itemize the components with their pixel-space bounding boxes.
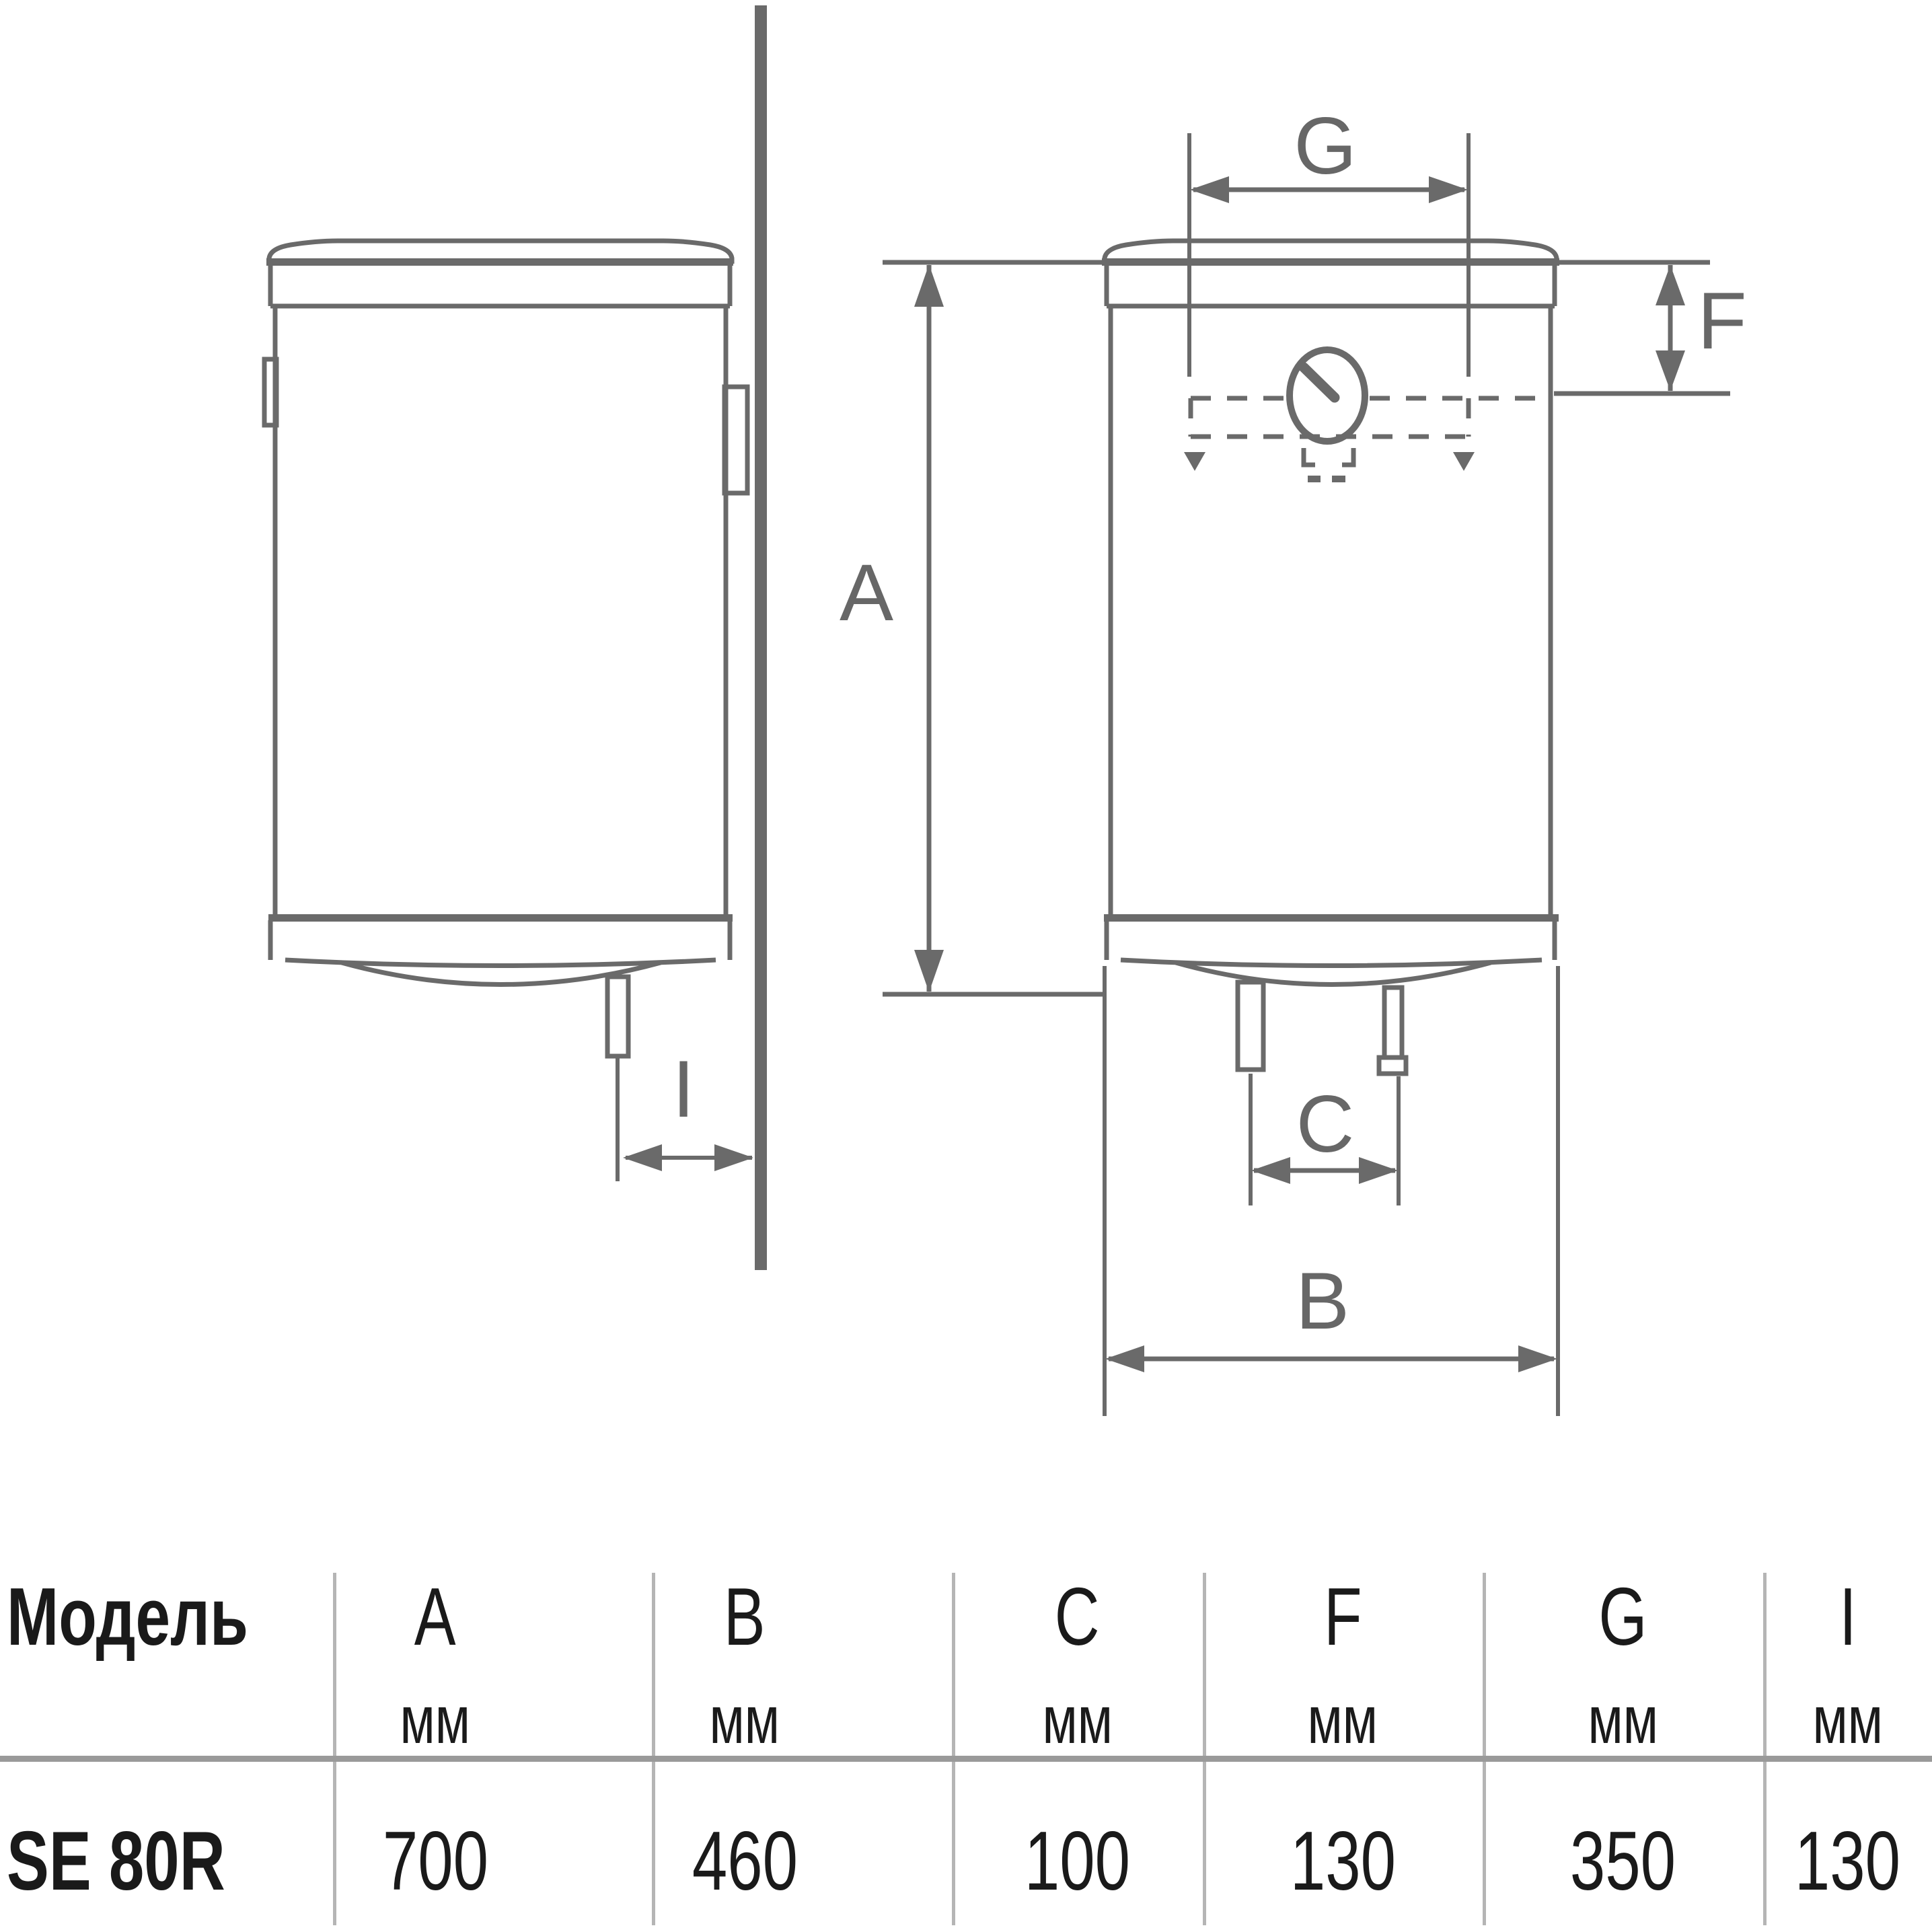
dim-B-arrow-right bbox=[1518, 1345, 1557, 1372]
value-g: 350 bbox=[1483, 1811, 1763, 1912]
dim-I: I bbox=[623, 1044, 753, 1171]
bracket-left bbox=[264, 359, 276, 425]
units-g: мм bbox=[1483, 1682, 1763, 1759]
value-a-text: 700 bbox=[382, 1814, 488, 1909]
units-f: мм bbox=[1203, 1682, 1483, 1759]
value-b: 460 bbox=[652, 1811, 952, 1912]
dim-A: A bbox=[840, 262, 1103, 994]
dim-G-arrow-right bbox=[1429, 176, 1468, 203]
spec-table: Модель A B C F G I мм мм мм мм мм мм SE … bbox=[0, 1547, 1932, 1932]
value-f-text: 130 bbox=[1290, 1814, 1395, 1909]
dimension-diagram: I A bbox=[0, 0, 1932, 1514]
dim-C-arrow-right bbox=[1359, 1157, 1398, 1184]
units-a-label: мм bbox=[400, 1682, 471, 1759]
table-data-row: SE 80R 700 460 100 130 350 130 bbox=[0, 1811, 1932, 1912]
dim-I-label: I bbox=[672, 1044, 694, 1134]
pipe-outlet-foot bbox=[1379, 1057, 1406, 1074]
header-dim-g: G bbox=[1483, 1566, 1763, 1667]
value-model-cell: SE 80R bbox=[0, 1811, 333, 1912]
units-g-label: мм bbox=[1588, 1682, 1658, 1759]
dim-I-arrow-left bbox=[623, 1144, 662, 1171]
value-i-text: 130 bbox=[1795, 1814, 1900, 1909]
pipe-inlet bbox=[1238, 982, 1263, 1070]
page: { "diagram": { "labels": { "a": "A", "b"… bbox=[0, 0, 1932, 1932]
dim-F-arrow-down bbox=[1656, 350, 1685, 391]
wall-line bbox=[755, 5, 767, 1270]
dim-C-label: C bbox=[1296, 1079, 1355, 1169]
units-f-label: мм bbox=[1308, 1682, 1378, 1759]
value-f: 130 bbox=[1203, 1811, 1483, 1912]
pipe-outlet bbox=[1384, 988, 1402, 1057]
water-heater-drawing: I A bbox=[0, 0, 1932, 1514]
dim-A-arrow-up bbox=[914, 264, 944, 307]
header-dim-f: F bbox=[1203, 1566, 1483, 1667]
header-model-cell: Модель bbox=[0, 1566, 333, 1667]
tank-top-thick-line bbox=[266, 258, 733, 266]
dim-F-arrow-up bbox=[1656, 265, 1685, 305]
table-header-row: Модель A B C F G I bbox=[0, 1566, 1932, 1667]
bracket-arrow-down-left bbox=[1184, 452, 1205, 471]
tank-bottom-thick-line bbox=[268, 914, 733, 922]
tank-bottom-thick-line-front bbox=[1104, 914, 1559, 922]
units-b-label: мм bbox=[710, 1682, 780, 1759]
dim-I-arrow-right bbox=[714, 1144, 753, 1171]
value-i: 130 bbox=[1763, 1811, 1932, 1912]
units-b: мм bbox=[652, 1682, 952, 1759]
dim-C-arrow-left bbox=[1251, 1157, 1290, 1184]
header-dim-f-label: F bbox=[1324, 1569, 1362, 1664]
value-model-label: SE 80R bbox=[7, 1814, 225, 1909]
header-dim-i-label: I bbox=[1839, 1569, 1857, 1664]
value-b-text: 460 bbox=[692, 1814, 797, 1909]
dim-G-arrow-left bbox=[1190, 176, 1229, 203]
header-dim-b: B bbox=[652, 1566, 952, 1667]
pipe-side bbox=[607, 977, 628, 1056]
value-c-text: 100 bbox=[1025, 1814, 1130, 1909]
header-dim-b-label: B bbox=[724, 1569, 766, 1664]
header-dim-c-label: C bbox=[1055, 1569, 1100, 1664]
header-dim-a: A bbox=[333, 1566, 652, 1667]
header-dim-g-label: G bbox=[1598, 1569, 1647, 1664]
value-a: 700 bbox=[333, 1811, 652, 1912]
dim-F: F bbox=[1554, 262, 1747, 394]
tank-top-thick-line-front bbox=[1102, 258, 1559, 266]
dim-B: B bbox=[1105, 966, 1558, 1416]
units-i-label: мм bbox=[1812, 1682, 1883, 1759]
dim-B-arrow-left bbox=[1105, 1345, 1144, 1372]
header-dim-c: C bbox=[952, 1566, 1203, 1667]
dim-F-label: F bbox=[1697, 276, 1746, 366]
bracket-hook-right bbox=[1342, 448, 1353, 465]
dim-C: C bbox=[1251, 1074, 1399, 1205]
units-c: мм bbox=[952, 1682, 1203, 1759]
value-g-text: 350 bbox=[1570, 1814, 1676, 1909]
units-c-label: мм bbox=[1042, 1682, 1113, 1759]
units-empty-cell bbox=[0, 1682, 333, 1759]
bracket-hook-left bbox=[1304, 448, 1315, 465]
table-units-row: мм мм мм мм мм мм bbox=[0, 1682, 1932, 1749]
header-model-label: Модель bbox=[7, 1569, 248, 1664]
dim-A-arrow-down bbox=[914, 950, 944, 992]
thermostat-knob bbox=[1290, 350, 1365, 441]
header-dim-i: I bbox=[1763, 1566, 1932, 1667]
dim-A-label: A bbox=[840, 548, 893, 638]
bracket-arrow-down-right bbox=[1453, 452, 1475, 471]
units-a: мм bbox=[333, 1682, 652, 1759]
front-view bbox=[1102, 241, 1559, 1074]
units-i: мм bbox=[1763, 1682, 1932, 1759]
dim-G-label: G bbox=[1294, 101, 1356, 191]
dim-B-label: B bbox=[1296, 1256, 1349, 1346]
header-dim-a-label: A bbox=[414, 1569, 456, 1664]
value-c: 100 bbox=[952, 1811, 1203, 1912]
